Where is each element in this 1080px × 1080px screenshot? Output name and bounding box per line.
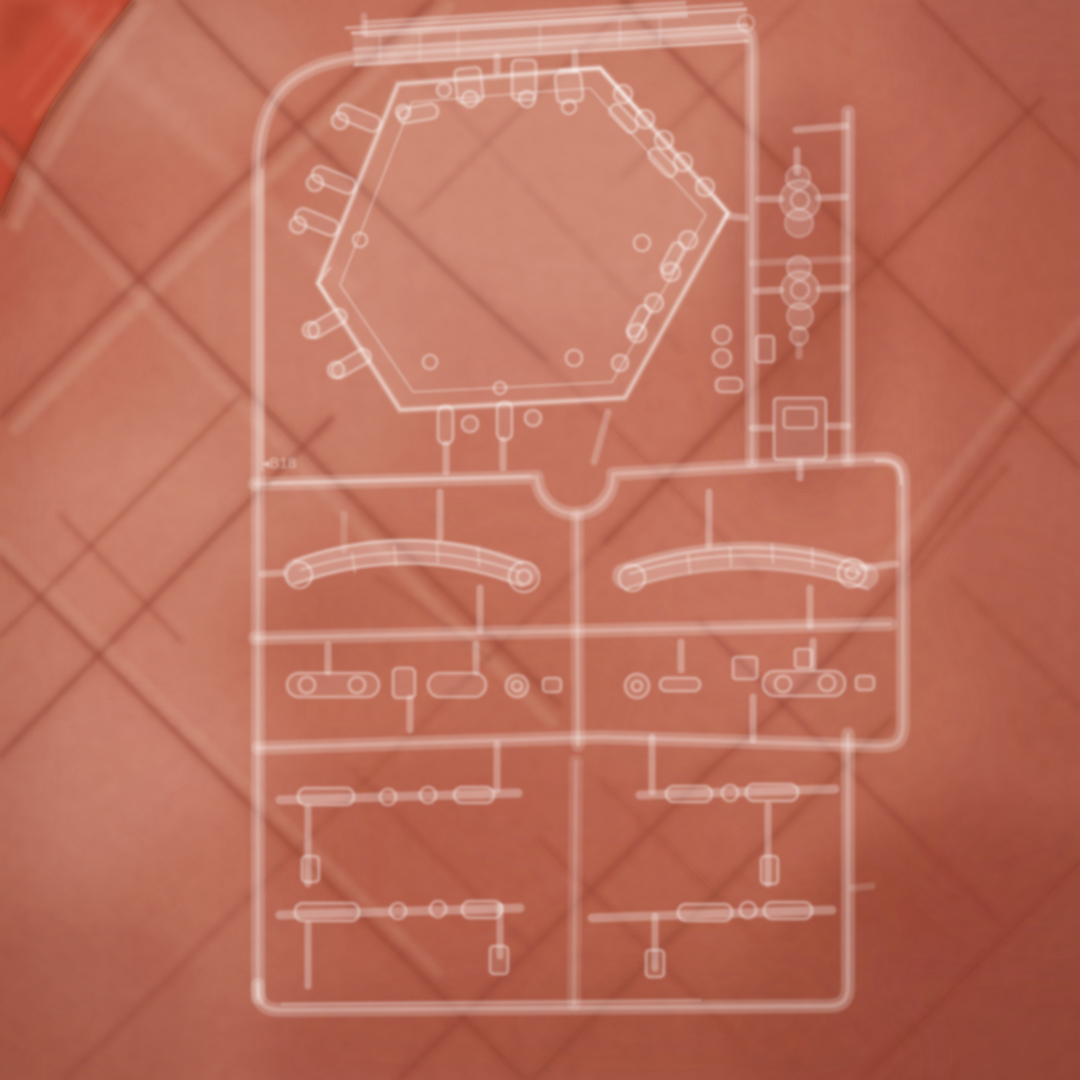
svg-text:◂B18: ◂B18: [262, 455, 296, 472]
